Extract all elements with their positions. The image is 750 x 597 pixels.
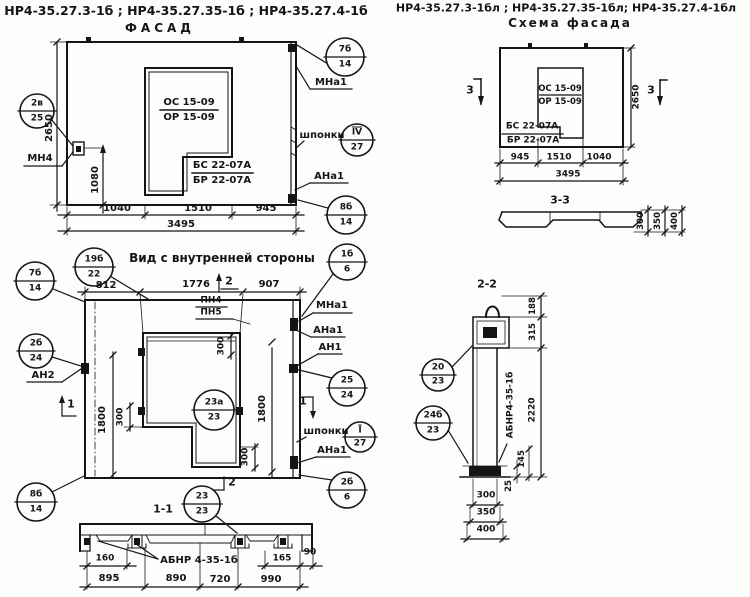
schema-dim-total: 3495	[555, 171, 580, 180]
inner-dim-300-top: 300	[218, 337, 227, 356]
inner-callout-23a-bot: 23	[208, 414, 221, 423]
section-1-1-dim-165: 165	[273, 555, 292, 564]
inner-callout-key-top: I	[358, 427, 361, 436]
section-1-1-callout-top: 23	[196, 493, 209, 502]
section-2-2-panel-label: АБНР4-35-1б	[507, 372, 516, 439]
schema-window-mark-bot: ОР 15-09	[538, 98, 582, 107]
facade-dim-w2: 1510	[184, 204, 212, 214]
inner-label-pn5: ПН5	[200, 309, 221, 318]
schema-dim-height: 2650	[633, 84, 642, 109]
section-3-3-dim-400: 400	[671, 212, 680, 230]
inner-callout-19b-top: 19б	[85, 256, 104, 265]
section-1-1-title: 1-1	[153, 504, 173, 515]
inner-dim-300-bot: 300	[242, 448, 251, 467]
section-3-3-title: 3-3	[550, 195, 570, 206]
section-2-2-dim-188: 188	[529, 297, 538, 315]
facade-label-mn4: МН4	[27, 154, 52, 164]
title-facade: ФАСАД	[125, 22, 195, 34]
inner-label-shponki: шпонки	[303, 427, 348, 437]
facade-dim-w1: 1040	[103, 204, 131, 214]
section-2-2-callout-20-bot: 23	[432, 378, 445, 387]
facade-window-mark-top: ОС 15-09	[163, 98, 214, 108]
section-2-2-callout-20-top: 20	[432, 364, 445, 373]
inner-callout-7b-bot: 14	[29, 285, 42, 294]
schema-dim-w2: 1510	[546, 154, 571, 163]
inner-dim-1800-right: 1800	[258, 395, 268, 423]
schema-block-mark-bot: БР 22-07А	[507, 137, 559, 146]
section-2-2-dim-145: 145	[518, 450, 527, 468]
facade-dim-total: 3495	[167, 220, 195, 230]
facade-block-mark-bot: БР 22-07А	[193, 176, 251, 186]
section-2-2-dim-b350: 350	[477, 509, 496, 518]
section-1-1-panel-label: АБНР 4-35-1б	[160, 556, 238, 566]
inner-dim-1800-left: 1800	[98, 406, 108, 434]
inner-dim-top1: 812	[96, 281, 117, 291]
section-3-3-dim-300: 300	[637, 212, 646, 230]
inner-sec1-mark-right: 1	[299, 396, 307, 407]
facade-dim-height: 2650	[45, 114, 55, 142]
facade-label-shponki: шпонки	[299, 131, 344, 141]
inner-callout-25-bot: 24	[341, 392, 354, 401]
facade-window-mark-bot: ОР 15-09	[163, 113, 214, 123]
schema-window-mark-top: ОС 15-09	[538, 85, 582, 94]
inner-callout-19b-bot: 22	[88, 271, 101, 280]
facade-block-mark-top: БС 22-07А	[193, 161, 251, 171]
inner-callout-2b24-top: 2б	[30, 340, 43, 349]
inner-callout-2b6-top: 2б	[341, 479, 354, 488]
schema-drawing	[474, 43, 685, 236]
inner-callout-8b-top: 8б	[30, 491, 43, 500]
facade-callout-key-bot: 27	[351, 144, 364, 153]
inner-label-mna1: МНа1	[316, 301, 348, 311]
inner-sec2-mark-bot: 2	[228, 477, 236, 488]
inner-label-ana1-top: АНа1	[313, 326, 343, 336]
section-2-2-callout-24b-top: 24б	[424, 412, 443, 421]
section-1-1-dim-990: 990	[261, 575, 282, 585]
facade-callout-tr-top: 7б	[339, 46, 352, 55]
schema-sec3-mark-right: 3	[647, 85, 655, 96]
title-codes-left: НР4-35.27.3-1б ; НР4-35.27.35-1б ; НР4-3…	[4, 5, 367, 18]
facade-callout-br-top: 8б	[340, 204, 353, 213]
inner-sec2-mark-top: 2	[225, 276, 233, 287]
section-2-2-title: 2-2	[477, 279, 497, 290]
schema-block-mark-top: БС 22-07А	[506, 123, 558, 132]
section-2-2-dim-b400: 400	[477, 526, 496, 535]
section-2-2-dim-b300: 300	[477, 492, 496, 501]
inner-callout-8b-bot: 14	[30, 506, 43, 515]
inner-callout-2b24-bot: 24	[30, 355, 43, 364]
facade-callout-key-top: IV	[352, 129, 362, 138]
facade-callout-left-bot: 25	[31, 115, 44, 124]
section-1-1-dim-160: 160	[96, 555, 115, 564]
inner-callout-25-top: 25	[341, 377, 354, 386]
inner-callout-7b-top: 7б	[29, 270, 42, 279]
inner-label-pn4: ПН4	[200, 297, 221, 306]
inner-callout-2b6-bot: 6	[344, 494, 350, 503]
inner-dim-top3: 907	[259, 280, 280, 290]
inner-dim-300-left: 300	[117, 408, 126, 427]
section-2-2-callout-24b-bot: 23	[427, 427, 440, 436]
inner-callout-1b6-bot: 6	[344, 266, 350, 275]
drawing-sheet: НР4-35.27.3-1б ; НР4-35.27.35-1б ; НР4-3…	[0, 0, 750, 597]
inner-label-an1: АН1	[318, 343, 341, 353]
section-1-1-dim-720: 720	[210, 575, 231, 585]
section-1-1-dim-890: 890	[166, 574, 187, 584]
schema-dim-w3: 1040	[586, 154, 611, 163]
facade-dim-inner: 1080	[91, 166, 101, 194]
section-1-1-dim-90: 90	[304, 549, 317, 558]
inner-sec1-mark-left: 1	[67, 399, 75, 410]
facade-callout-left-top: 2в	[31, 100, 43, 109]
facade-label-ana1: АНа1	[314, 172, 344, 182]
inner-callout-key-bot: 27	[354, 440, 367, 449]
section-2-2-dim-2220: 2220	[529, 397, 538, 422]
facade-dim-w3: 945	[256, 204, 277, 214]
inner-view-title: Вид с внутренней стороны	[129, 252, 315, 264]
section-1-1-callout-bot: 23	[196, 508, 209, 517]
inner-callout-1b6-top: 1б	[341, 251, 354, 260]
facade-label-mna1: МНа1	[315, 78, 347, 88]
inner-label-an2: АН2	[31, 371, 54, 381]
schema-dim-w1: 945	[511, 154, 530, 163]
schema-sec3-mark-left: 3	[466, 85, 474, 96]
title-schema: Схема фасада	[508, 17, 632, 29]
section-2-2-dim-25: 25	[505, 480, 514, 492]
facade-callout-tr-bot: 14	[339, 61, 352, 70]
section-1-1-dim-895: 895	[99, 574, 120, 584]
inner-callout-23a-top: 23а	[205, 399, 224, 408]
title-codes-right: НР4-35.27.3-1бл ; НР4-35.27.35-1бл; НР4-…	[396, 3, 736, 14]
facade-callout-br-bot: 14	[340, 219, 353, 228]
inner-label-ana1-bot: АНа1	[317, 446, 347, 456]
inner-dim-top2: 1776	[182, 280, 210, 290]
section-2-2-dim-315: 315	[529, 323, 538, 341]
section-3-3-dim-350: 350	[654, 212, 663, 230]
